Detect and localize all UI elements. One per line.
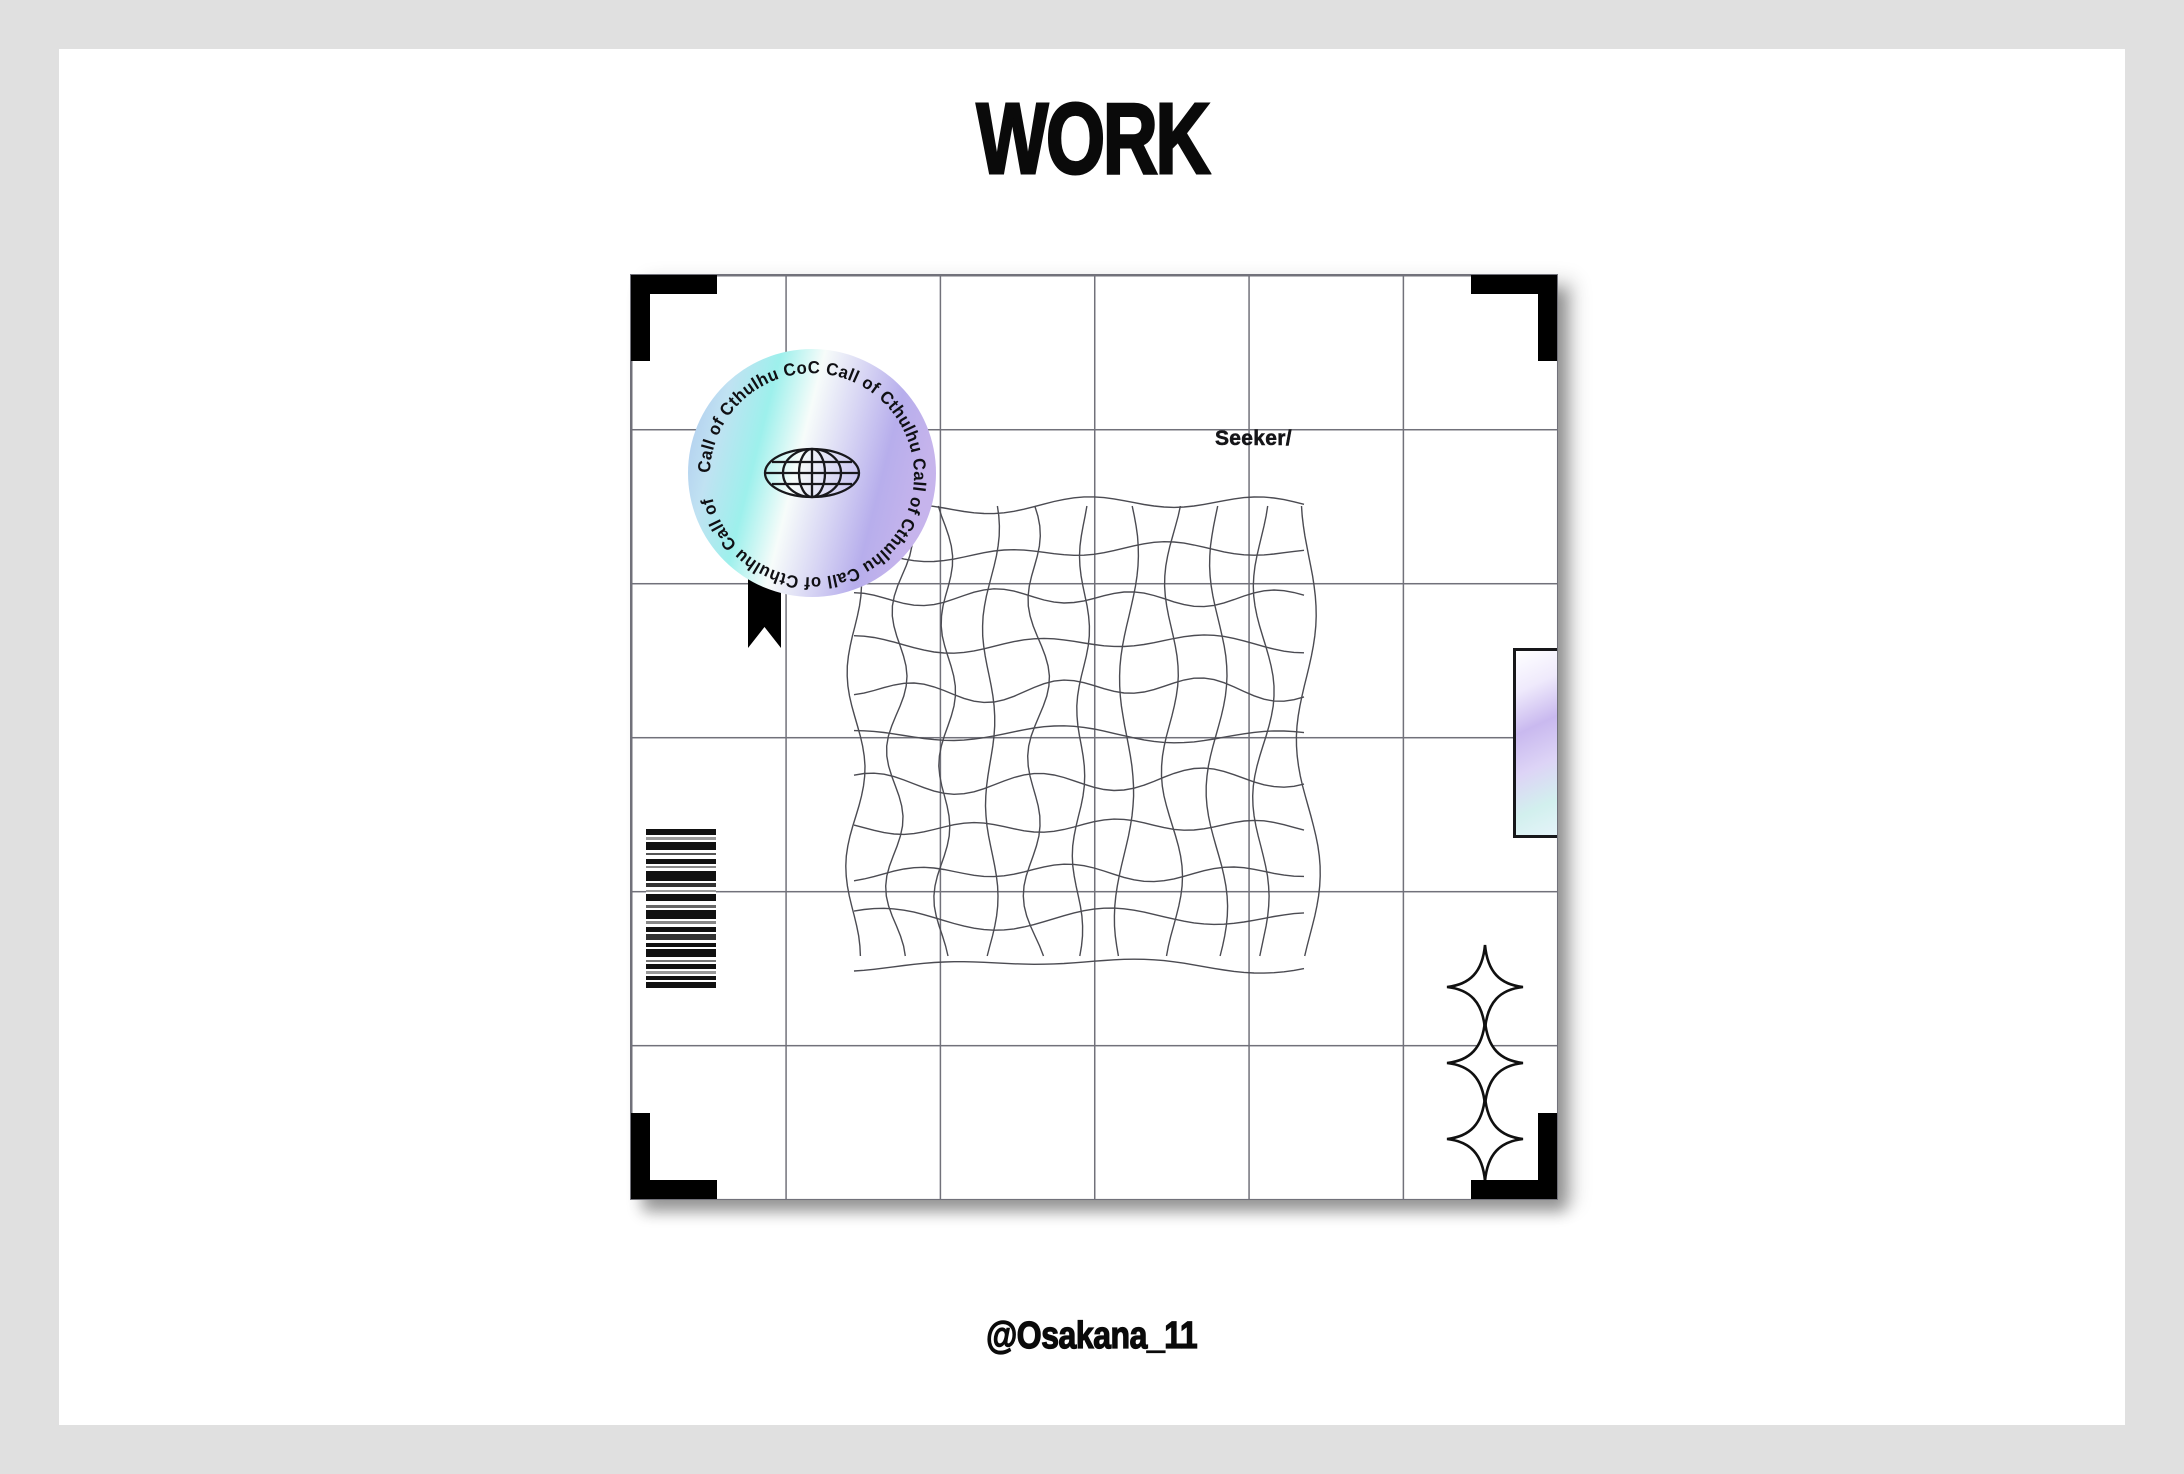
title-text: WORK [976,89,1208,189]
holo-tag [1513,648,1558,838]
corner-bracket-top-right [1471,275,1557,361]
sparkle-icon [1447,945,1523,1029]
barcode [646,829,716,1001]
corner-bracket-bottom-right [1471,1113,1557,1199]
credit-handle: @Osakana_11 [59,1317,2125,1355]
credit-text: @Osakana_11 [986,1317,1197,1355]
sparkle-icon [1447,1021,1523,1105]
globe-icon [765,449,859,497]
page-title: WORK [59,89,2125,189]
design-card: Call of Cthulhu CoC Call of Cthulhu Call… [630,274,1558,1200]
corner-bracket-bottom-left [631,1113,717,1199]
artboard: WORK Call of Cthulhu CoC Call of Cthulhu… [59,49,2125,1425]
holo-sticker: Call of Cthulhu CoC Call of Cthulhu Call… [688,349,936,597]
page-background: { "page": { "background": "#e0e0e0", "ca… [0,0,2184,1474]
seeker-label: Seeker/ [1215,427,1292,451]
corner-bracket-top-left [631,275,717,361]
